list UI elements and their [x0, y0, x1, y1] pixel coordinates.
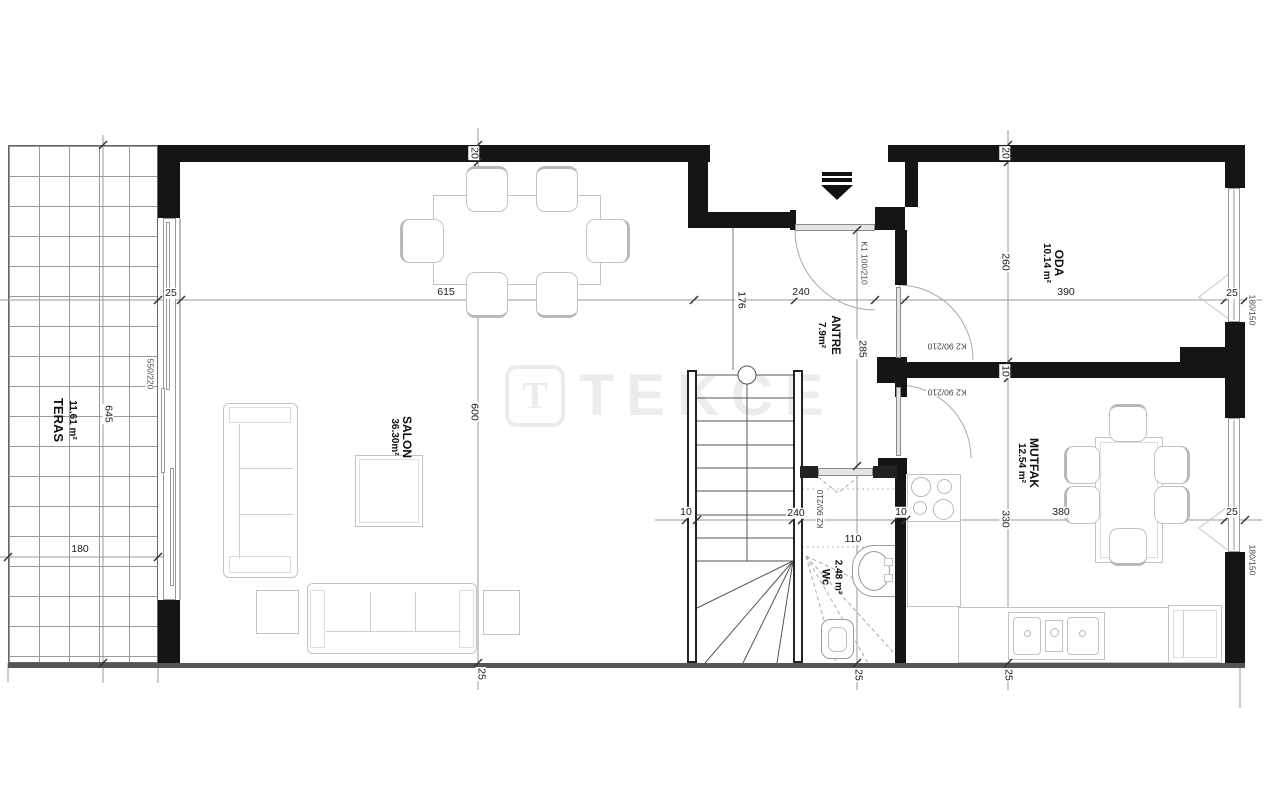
- dim-label: 25: [1225, 507, 1239, 518]
- window-tag: 180/150: [1248, 294, 1257, 327]
- room-area: 10.14 m²: [1040, 243, 1052, 283]
- dim-label: 240: [786, 508, 806, 519]
- dim-label: 380: [1051, 507, 1071, 518]
- room-label-antre: ANTRE 7.9m²: [815, 315, 841, 355]
- room-label-salon: SALON 36.30m²: [388, 416, 414, 458]
- dimension-ticks: [0, 0, 1280, 790]
- dim-label: 330: [1000, 509, 1011, 529]
- dim-label: 615: [436, 287, 456, 298]
- floor-plan-canvas: T TEKCE: [0, 0, 1280, 790]
- dim-label: 176: [736, 290, 747, 310]
- dim-label: 285: [857, 339, 868, 359]
- room-name: ODA: [1052, 243, 1066, 283]
- dim-label: 20: [1000, 146, 1011, 160]
- dim-label: 25: [1003, 668, 1014, 682]
- window-tag: 550/220: [146, 358, 155, 391]
- room-name: SALON: [400, 416, 414, 458]
- dim-label: 390: [1056, 287, 1076, 298]
- dim-label: 10: [1000, 364, 1011, 378]
- room-name: MUTFAK: [1027, 438, 1041, 488]
- room-name: TERAS: [50, 398, 66, 442]
- room-area: 12.54 m²: [1015, 438, 1027, 488]
- dim-label: 260: [1000, 252, 1011, 272]
- dim-label: 110: [844, 534, 863, 545]
- dim-label: 20: [469, 146, 480, 160]
- room-label-oda: ODA 10.14 m²: [1040, 243, 1066, 283]
- room-area: 11.61 m²: [66, 398, 78, 442]
- room-label-mutfak: MUTFAK 12.54 m²: [1015, 438, 1041, 488]
- room-label-teras: 11.61 m² TERAS: [50, 398, 78, 442]
- room-area: 7.9m²: [815, 315, 827, 355]
- dim-label: 645: [103, 404, 114, 424]
- door-tag-k2-oda: K2 90/210: [927, 342, 968, 351]
- room-name: ANTRE: [827, 315, 841, 355]
- room-name: Wc: [818, 560, 831, 594]
- dim-label: 180: [70, 544, 90, 555]
- door-tag-k1: K1 100/210: [860, 240, 869, 285]
- dim-label: 25: [1225, 288, 1239, 299]
- dim-label: 600: [469, 402, 480, 422]
- dim-label: 25: [164, 288, 178, 299]
- dim-label: 240: [791, 287, 811, 298]
- room-area: 36.30m²: [388, 416, 400, 458]
- dim-label: 10: [894, 507, 908, 518]
- dim-label: 25: [476, 667, 487, 681]
- door-tag-k2-wc: K2 90/210: [816, 489, 825, 530]
- room-area: 2.48 m²: [832, 560, 844, 594]
- door-tag-k2-mutfak: K2 90/210: [927, 388, 968, 397]
- window-tag: 180/150: [1248, 544, 1257, 577]
- dim-label: 10: [679, 507, 693, 518]
- room-label-wc: 2.48 m² Wc: [818, 560, 843, 594]
- dim-label: 25: [853, 668, 864, 682]
